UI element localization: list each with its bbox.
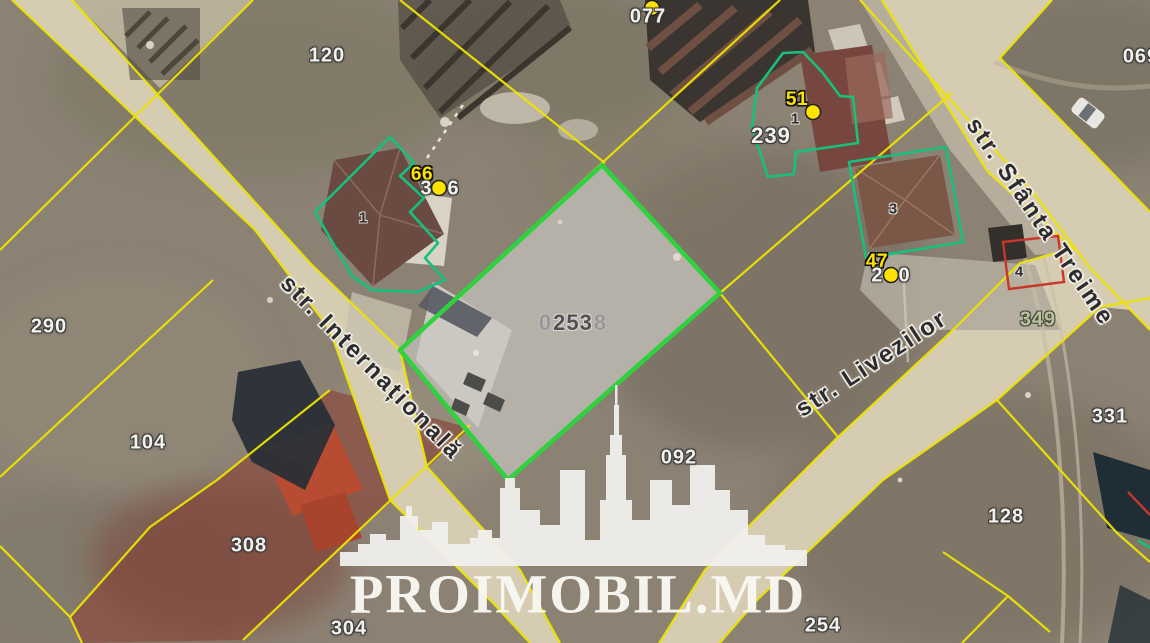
satellite-map-viewport: 077 120 069 290 104 308 304 254 128 331 … <box>0 0 1150 643</box>
house-3-roof <box>855 155 955 248</box>
satellite-map <box>0 0 1150 643</box>
